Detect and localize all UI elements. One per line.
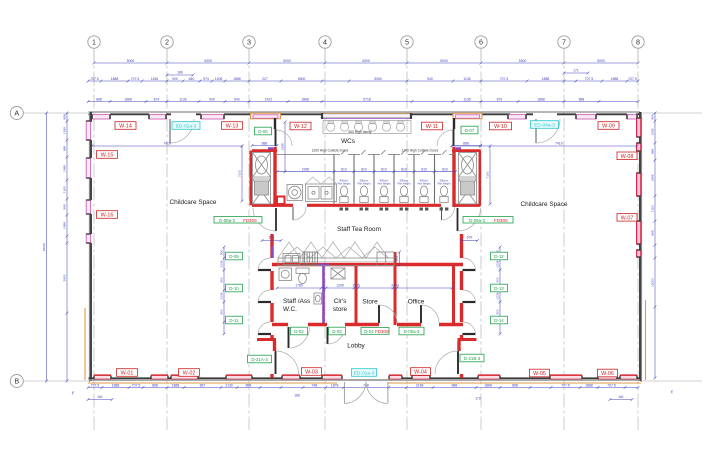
svg-text:Store: Store <box>362 299 378 306</box>
svg-text:1236: 1236 <box>496 292 500 299</box>
svg-text:810: 810 <box>341 167 347 171</box>
svg-text:1888: 1888 <box>233 77 241 81</box>
svg-text:7419: 7419 <box>163 142 171 146</box>
svg-text:Childcare Space: Childcare Space <box>170 199 217 206</box>
svg-text:679: 679 <box>467 236 473 240</box>
svg-text:Pan Height: Pan Height <box>338 182 351 186</box>
svg-text:7419: 7419 <box>555 142 563 146</box>
svg-text:1136: 1136 <box>179 97 186 101</box>
svg-text:D-09: D-09 <box>229 254 239 259</box>
svg-text:W-04: W-04 <box>414 370 427 376</box>
svg-text:5300: 5300 <box>519 59 527 63</box>
svg-text:ED-04a-3: ED-04a-3 <box>534 123 555 129</box>
svg-text:707.5: 707.5 <box>90 77 99 81</box>
svg-text:D-21A-3: D-21A-3 <box>251 357 268 362</box>
svg-text:888: 888 <box>63 204 67 209</box>
svg-text:D-03: D-03 <box>332 329 342 334</box>
svg-text:1595: 1595 <box>63 127 67 134</box>
svg-text:D-11: D-11 <box>229 318 239 323</box>
svg-text:679: 679 <box>269 236 275 240</box>
svg-text:186: 186 <box>177 71 183 75</box>
svg-text:2400: 2400 <box>391 284 399 288</box>
svg-text:888: 888 <box>262 142 268 146</box>
svg-text:940: 940 <box>427 77 433 81</box>
svg-text:Staff Tea Room: Staff Tea Room <box>337 226 381 233</box>
svg-text:W-09: W-09 <box>602 124 615 130</box>
svg-text:707.5: 707.5 <box>131 77 140 81</box>
svg-text:Pan Height: Pan Height <box>358 182 371 186</box>
svg-text:W-10: W-10 <box>494 124 507 130</box>
svg-text:888: 888 <box>579 97 585 101</box>
svg-text:D-05a-3: D-05a-3 <box>404 329 420 334</box>
svg-text:874: 874 <box>154 97 160 101</box>
svg-text:W-11: W-11 <box>426 124 438 130</box>
svg-text:1888: 1888 <box>611 77 619 81</box>
svg-text:5500: 5500 <box>298 77 306 81</box>
svg-text:7: 7 <box>562 38 566 47</box>
svg-text:2148: 2148 <box>416 383 424 387</box>
svg-text:900: 900 <box>220 277 224 282</box>
svg-text:900: 900 <box>496 309 500 314</box>
svg-text:810: 810 <box>381 167 387 171</box>
svg-text:1: 1 <box>92 38 96 47</box>
svg-text:1236: 1236 <box>220 292 224 299</box>
svg-text:Clr's: Clr's <box>334 298 347 305</box>
svg-text:A: A <box>14 109 19 118</box>
svg-text:810: 810 <box>421 167 427 171</box>
svg-text:1888: 1888 <box>111 77 119 81</box>
svg-text:FD30S: FD30S <box>243 218 257 223</box>
svg-text:5000: 5000 <box>127 59 135 63</box>
svg-text:W-16: W-16 <box>101 213 114 219</box>
svg-text:900: 900 <box>172 77 178 81</box>
svg-text:810: 810 <box>442 167 448 171</box>
svg-text:2862: 2862 <box>63 274 67 281</box>
svg-text:1888: 1888 <box>124 97 132 101</box>
svg-text:10000: 10000 <box>651 278 655 287</box>
svg-text:1888: 1888 <box>63 165 67 172</box>
svg-text:W-05: W-05 <box>533 371 546 377</box>
svg-text:1208: 1208 <box>215 77 223 81</box>
svg-text:5718: 5718 <box>363 97 371 101</box>
svg-text:W-02: W-02 <box>183 371 196 377</box>
svg-text:900: 900 <box>220 309 224 314</box>
svg-text:1300: 1300 <box>63 186 67 193</box>
svg-text:1888: 1888 <box>585 383 593 387</box>
svg-text:ED-02a-3: ED-02a-3 <box>176 124 197 130</box>
svg-text:900: 900 <box>220 250 224 255</box>
svg-text:5: 5 <box>405 38 409 47</box>
svg-text:867: 867 <box>200 383 206 387</box>
svg-text:75: 75 <box>71 391 75 395</box>
svg-text:FD30S: FD30S <box>494 218 508 223</box>
svg-text:1888: 1888 <box>172 383 180 387</box>
svg-text:888: 888 <box>512 383 518 387</box>
svg-text:1595: 1595 <box>651 128 655 135</box>
svg-text:18000: 18000 <box>42 242 46 251</box>
svg-text:Office: Office <box>408 299 425 306</box>
svg-text:1136: 1136 <box>463 77 470 81</box>
svg-text:7100: 7100 <box>238 170 242 177</box>
svg-text:707.5: 707.5 <box>132 383 141 387</box>
svg-text:1888: 1888 <box>63 222 67 229</box>
svg-text:D-12: D-12 <box>494 254 504 259</box>
svg-text:2: 2 <box>165 38 169 47</box>
svg-text:900: 900 <box>496 277 500 282</box>
svg-text:888: 888 <box>246 383 252 387</box>
svg-text:171: 171 <box>573 69 579 73</box>
svg-text:Pan Height: Pan Height <box>378 182 391 186</box>
svg-text:W-01: W-01 <box>121 371 134 377</box>
svg-text:W-12: W-12 <box>294 124 307 130</box>
svg-text:600 High Vanity: 600 High Vanity <box>348 130 371 134</box>
svg-text:store: store <box>333 306 348 313</box>
svg-text:1300: 1300 <box>651 205 655 212</box>
svg-text:FD30S: FD30S <box>375 329 389 334</box>
svg-text:D-02: D-02 <box>294 329 304 334</box>
svg-text:5060: 5060 <box>374 77 382 81</box>
svg-text:888: 888 <box>651 149 655 154</box>
svg-text:1835: 1835 <box>352 284 360 288</box>
svg-text:161: 161 <box>618 395 624 399</box>
svg-text:974: 974 <box>203 77 209 81</box>
svg-text:707.5: 707.5 <box>500 77 509 81</box>
svg-text:879: 879 <box>497 97 503 101</box>
svg-text:1888: 1888 <box>301 97 309 101</box>
svg-text:B: B <box>14 377 19 386</box>
svg-text:1422: 1422 <box>265 97 273 101</box>
svg-text:Childcare Space: Childcare Space <box>521 201 568 208</box>
svg-text:707.5: 707.5 <box>585 77 594 81</box>
svg-text:640: 640 <box>189 77 195 81</box>
svg-text:888: 888 <box>651 230 655 235</box>
svg-text:D-21B-3: D-21B-3 <box>464 356 481 361</box>
svg-text:W.C.: W.C. <box>283 306 297 313</box>
svg-text:707.5: 707.5 <box>91 383 100 387</box>
svg-text:1888: 1888 <box>112 383 120 387</box>
svg-text:7100: 7100 <box>486 171 490 178</box>
svg-text:Lobby: Lobby <box>347 343 365 350</box>
svg-text:1878: 1878 <box>331 383 339 387</box>
svg-text:1888: 1888 <box>651 174 655 181</box>
svg-text:W-07: W-07 <box>621 215 634 221</box>
svg-text:186: 186 <box>294 394 300 398</box>
svg-text:D-08a-3: D-08a-3 <box>219 218 235 223</box>
svg-text:888: 888 <box>452 383 458 387</box>
svg-text:3: 3 <box>247 38 251 47</box>
svg-text:W-14: W-14 <box>119 124 132 130</box>
svg-text:1200 High Cubicle Doors: 1200 High Cubicle Doors <box>402 149 439 153</box>
svg-text:5300: 5300 <box>204 59 212 63</box>
svg-text:5000: 5000 <box>597 59 605 63</box>
svg-text:ED-01a-3: ED-01a-3 <box>354 371 375 377</box>
svg-text:D-04: D-04 <box>364 329 374 334</box>
svg-text:5000: 5000 <box>440 59 448 63</box>
svg-text:8: 8 <box>636 38 640 47</box>
svg-text:875: 875 <box>395 256 399 261</box>
svg-text:2130: 2130 <box>225 383 233 387</box>
svg-text:Staff /Ass: Staff /Ass <box>283 298 310 305</box>
svg-text:2398: 2398 <box>281 143 285 150</box>
svg-text:W-06: W-06 <box>601 371 614 377</box>
svg-text:1299: 1299 <box>336 284 344 288</box>
svg-text:W-03: W-03 <box>305 370 318 376</box>
svg-text:707.5: 707.5 <box>561 383 570 387</box>
svg-text:227: 227 <box>262 77 268 81</box>
svg-text:640: 640 <box>234 97 240 101</box>
svg-text:1780: 1780 <box>295 284 303 288</box>
svg-text:D-14: D-14 <box>494 318 504 323</box>
svg-text:5000: 5000 <box>283 59 291 63</box>
svg-text:5300: 5300 <box>362 59 370 63</box>
svg-text:1888: 1888 <box>484 383 492 387</box>
svg-text:W-08: W-08 <box>621 154 634 160</box>
svg-text:Pan Height: Pan Height <box>438 182 451 186</box>
svg-text:748: 748 <box>312 383 318 387</box>
svg-text:1236: 1236 <box>496 260 500 267</box>
svg-text:884: 884 <box>651 114 655 119</box>
svg-text:D-06: D-06 <box>258 129 268 134</box>
svg-text:4: 4 <box>323 38 327 47</box>
svg-text:WCs: WCs <box>341 138 355 145</box>
svg-text:Pan Height: Pan Height <box>418 182 431 186</box>
svg-text:810: 810 <box>401 167 407 171</box>
svg-text:888: 888 <box>463 142 469 146</box>
svg-text:W-13: W-13 <box>226 124 239 130</box>
svg-text:1156: 1156 <box>151 77 158 81</box>
svg-text:888: 888 <box>63 146 67 151</box>
svg-text:75: 75 <box>670 390 674 394</box>
svg-text:810: 810 <box>361 167 367 171</box>
svg-text:1136: 1136 <box>463 97 470 101</box>
svg-text:1888: 1888 <box>542 77 550 81</box>
svg-text:172: 172 <box>475 397 481 401</box>
svg-text:888: 888 <box>63 114 67 119</box>
svg-text:D-07: D-07 <box>465 128 475 133</box>
svg-text:D-09a-3: D-09a-3 <box>469 218 485 223</box>
svg-text:888: 888 <box>96 97 102 101</box>
svg-text:Pan Height: Pan Height <box>398 182 411 186</box>
svg-text:1888: 1888 <box>537 97 545 101</box>
svg-text:2396: 2396 <box>302 167 310 171</box>
svg-text:900: 900 <box>209 97 215 101</box>
svg-text:707.5: 707.5 <box>607 383 616 387</box>
svg-text:161: 161 <box>97 395 103 399</box>
svg-text:W-15: W-15 <box>101 153 114 159</box>
svg-text:1236: 1236 <box>220 260 224 267</box>
svg-text:D-13: D-13 <box>494 286 504 291</box>
svg-text:D-10: D-10 <box>229 286 239 291</box>
svg-text:6: 6 <box>479 38 483 47</box>
svg-text:888: 888 <box>152 383 158 387</box>
svg-text:707.5: 707.5 <box>628 77 637 81</box>
